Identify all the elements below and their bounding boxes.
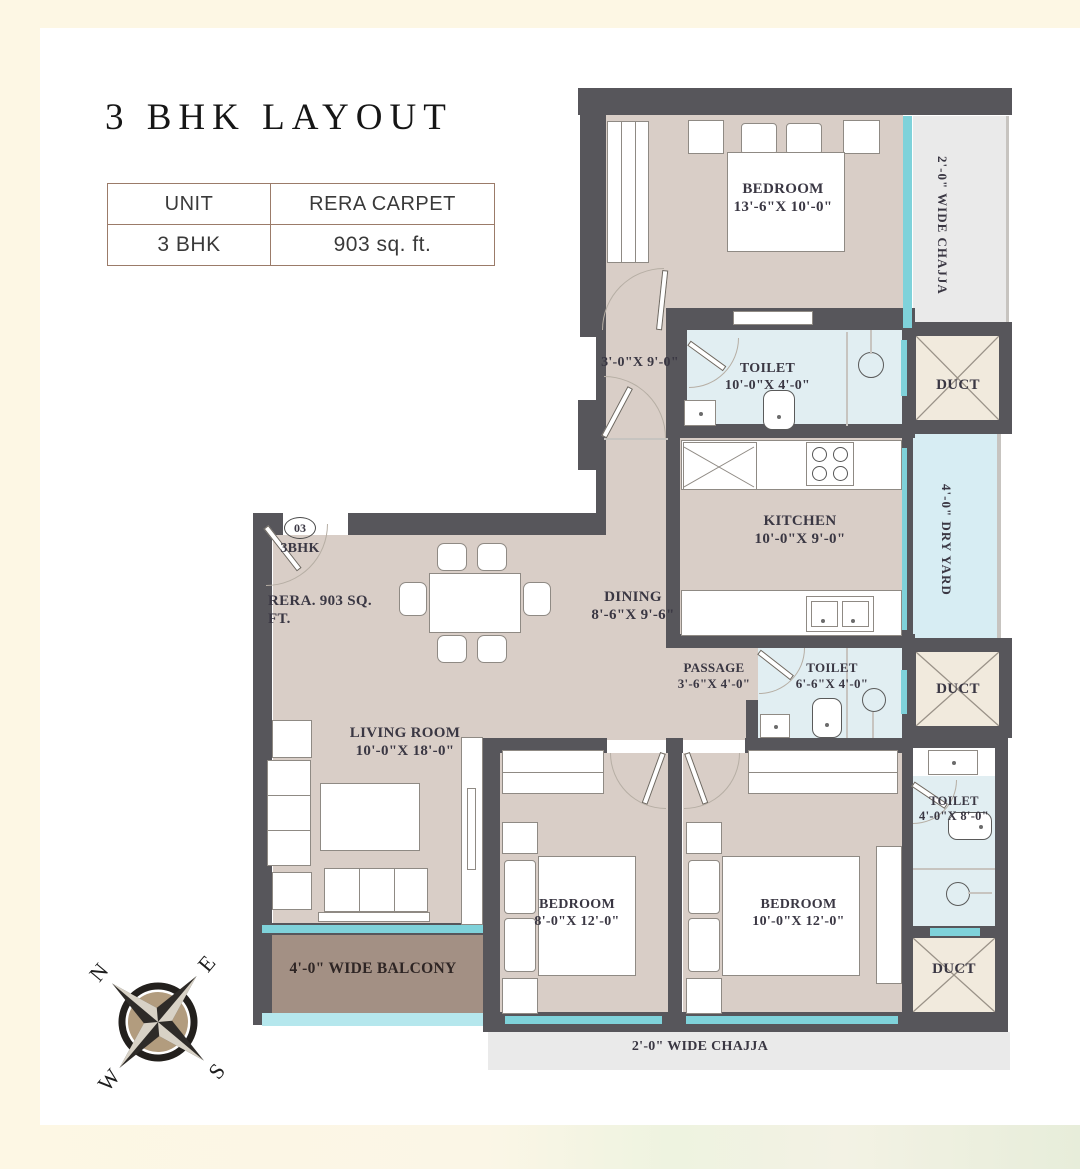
table-cell-unit: 3 BHK	[108, 225, 271, 266]
sofa	[267, 760, 311, 866]
wall	[995, 738, 1008, 1030]
stove	[806, 442, 854, 486]
background-frame-top	[0, 0, 1080, 28]
sofa-base	[318, 912, 430, 922]
toilet-wc	[763, 390, 795, 430]
room-label-duct1: DUCT	[916, 376, 1000, 394]
washbasin	[760, 714, 790, 738]
zone-label-chajja-bottom: 2'-0" WIDE CHAJJA	[560, 1038, 840, 1055]
window	[903, 116, 912, 328]
pillow	[741, 123, 777, 155]
floor-plan-page: 3 BHK LAYOUT UNIT RERA CARPET 3 BHK 903 …	[0, 0, 1080, 1169]
wall	[902, 738, 913, 1030]
wall	[999, 638, 1012, 738]
compass-letter-n: N	[84, 958, 113, 986]
wall	[902, 322, 1012, 336]
zone-dry-yard	[913, 434, 997, 638]
dining-table	[429, 573, 521, 633]
washbasin	[928, 750, 978, 775]
shower-arm	[872, 712, 874, 738]
tv-panel	[467, 788, 476, 870]
wardrobe	[748, 750, 898, 794]
nightstand	[502, 978, 538, 1014]
armchair	[272, 872, 312, 910]
zone-label-chajja-right: 2'-0" WIDE CHAJJA	[928, 150, 950, 300]
wall	[902, 738, 1008, 748]
shower-partition	[846, 332, 848, 426]
window	[901, 670, 907, 714]
table-cell-area: 903 sq. ft.	[271, 225, 495, 266]
window	[686, 1016, 898, 1024]
dresser	[876, 846, 902, 984]
room-label-bedroom-top: BEDROOM13'-6"X 10'-0"	[703, 180, 863, 217]
window	[901, 340, 907, 396]
shower-arm	[968, 892, 992, 894]
unit-number-badge: 03	[284, 517, 316, 539]
shower-partition	[913, 868, 995, 870]
chair	[437, 635, 467, 663]
wall	[580, 115, 606, 337]
window	[930, 928, 980, 936]
nightstand	[686, 978, 722, 1014]
wall	[483, 738, 500, 1030]
room-label-passage-top: 3'-0"X 9'-0"	[598, 354, 682, 371]
room-label-living: LIVING ROOM10'-0"X 18'-0"	[346, 724, 464, 761]
chair	[399, 582, 427, 616]
room-label-duct2: DUCT	[916, 680, 1000, 698]
room-label-toilet3: TOILET4'-0"X 8'-0"	[911, 794, 997, 825]
pillow	[688, 860, 720, 914]
dresser	[733, 311, 813, 325]
wall	[902, 726, 1012, 738]
room-label-passage: PASSAGE3'-6"X 4'-0"	[672, 660, 756, 692]
nightstand	[502, 822, 538, 854]
background-frame-left	[0, 0, 40, 1130]
refrigerator	[683, 442, 757, 490]
wall	[999, 322, 1012, 434]
wall	[666, 738, 683, 753]
window-balcony-outer	[262, 1013, 483, 1026]
window	[902, 448, 907, 630]
room-label-kitchen: KITCHEN10'-0"X 9'-0"	[740, 512, 860, 549]
room-label-toilet2: TOILET6'-6"X 4'-0"	[788, 660, 876, 692]
room-label-duct3: DUCT	[913, 960, 995, 978]
room-label-bedroom2: BEDROOM8'-0"X 12'-0"	[518, 896, 636, 930]
compass-letter-s: S	[203, 1058, 230, 1083]
compass-rose: N E S W	[70, 930, 245, 1110]
wall	[578, 400, 597, 470]
washbasin	[684, 400, 716, 426]
shower-arm	[870, 330, 872, 354]
door-threshold	[604, 438, 668, 440]
dry-yard-edge-line	[997, 434, 1001, 638]
coffee-table	[320, 783, 420, 851]
background-frame-bottom	[0, 1125, 1080, 1169]
wall	[348, 513, 606, 535]
unit-info-table: UNIT RERA CARPET 3 BHK 903 sq. ft.	[107, 183, 495, 266]
table-header-unit: UNIT	[108, 184, 271, 225]
room-label-dining: DINING8'-6"X 9'-6"	[584, 588, 682, 625]
compass-letter-w: W	[93, 1064, 126, 1096]
rera-area-label: RERA. 903 SQ. FT.	[268, 592, 398, 629]
wall	[746, 700, 758, 738]
kitchen-sink	[806, 596, 874, 632]
table-header-rera-carpet: RERA CARPET	[271, 184, 495, 225]
wall	[902, 420, 1012, 434]
nightstand	[843, 120, 880, 154]
zone-label-balcony: 4'-0" WIDE BALCONY	[268, 960, 478, 979]
wardrobe	[607, 121, 649, 263]
wall	[666, 634, 915, 648]
pillow	[688, 918, 720, 972]
chair	[477, 635, 507, 663]
wall	[578, 88, 1012, 115]
room-label-toilet1: TOILET10'-0"X 4'-0"	[715, 360, 820, 394]
room-label-bedroom3: BEDROOM10'-0"X 12'-0"	[736, 896, 861, 930]
shower-icon	[858, 352, 884, 378]
chair	[437, 543, 467, 571]
wall	[902, 638, 1012, 652]
shower-icon	[946, 882, 970, 906]
pillow	[786, 123, 822, 155]
chair	[523, 582, 551, 616]
compass-letter-e: E	[193, 950, 221, 976]
zone-label-dry-yard: 4'-0" DRY YARD	[932, 478, 954, 602]
wall	[668, 753, 682, 1015]
toilet-wc	[812, 698, 842, 738]
window-balcony	[262, 923, 483, 935]
armchair	[272, 720, 312, 758]
sofa	[324, 868, 428, 912]
nightstand	[686, 822, 722, 854]
wardrobe	[502, 750, 604, 794]
page-title: 3 BHK LAYOUT	[105, 96, 453, 139]
chair	[477, 543, 507, 571]
unit-type-label: 3BHK	[272, 540, 328, 557]
zone-chajja-right	[913, 116, 1006, 330]
window	[505, 1016, 662, 1024]
nightstand	[688, 120, 724, 154]
chajja-edge-line	[1006, 116, 1009, 330]
